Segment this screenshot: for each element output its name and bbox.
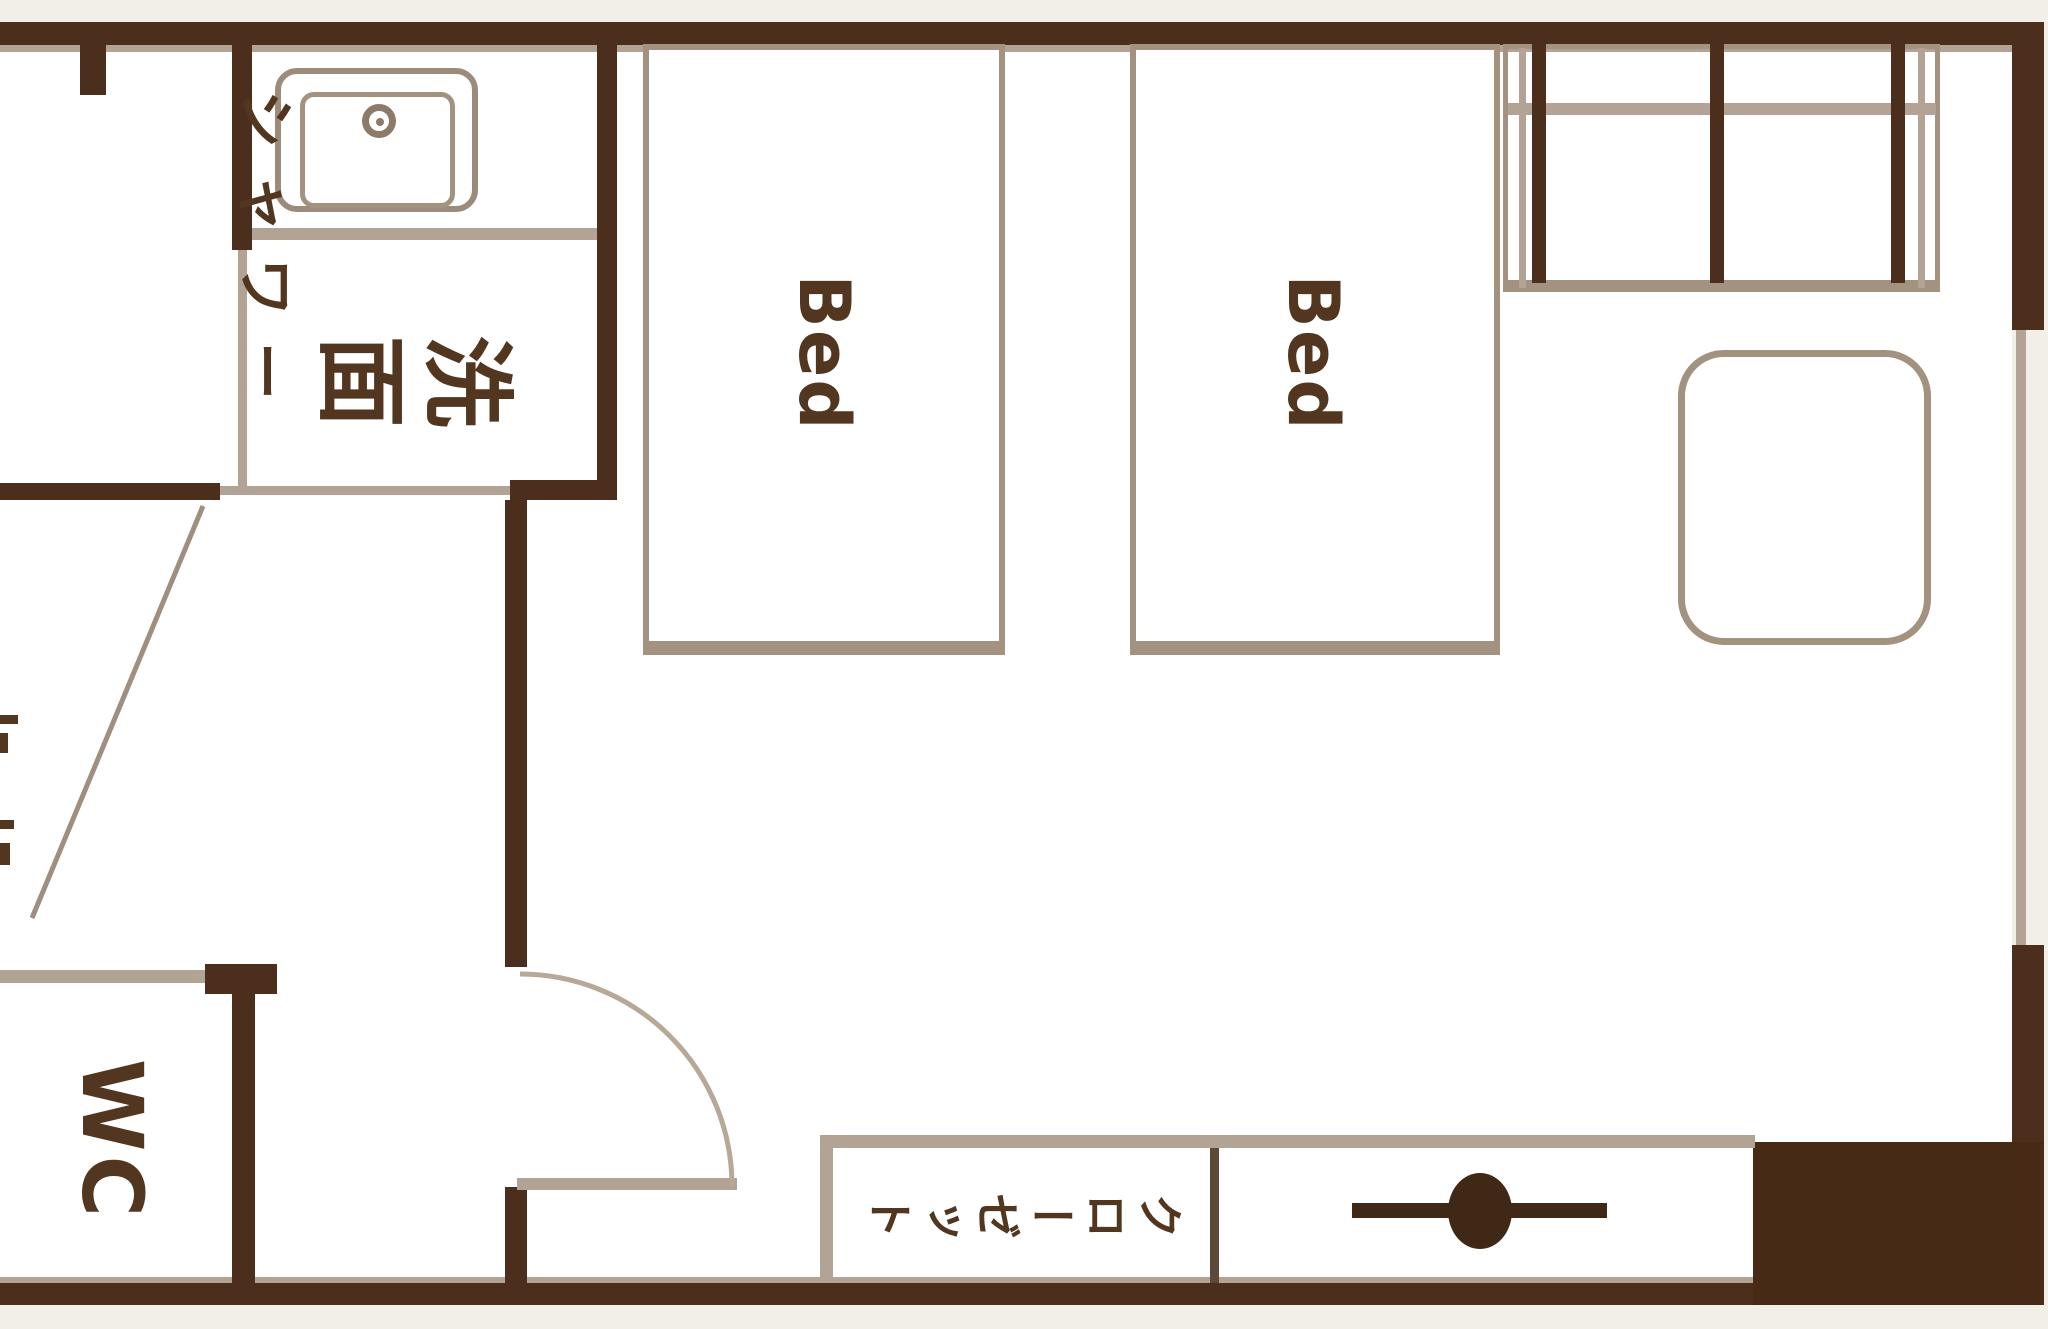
washroom-label: 洗面 [304,327,516,419]
cutoff-text-fragment [0,715,18,724]
floor-plan: シャワー ルーム 洗面 WC Bed Bed クローゼット [0,0,2048,1329]
bed2-label: Bed [1278,275,1348,432]
cutoff-text-fragment [0,843,10,865]
wc-label: WC [70,1059,154,1221]
cutoff-text-fragment [0,733,8,753]
closet-label: クローゼット [860,1190,1184,1236]
cutoff-text-fragment [0,820,14,829]
bed1-label: Bed [789,275,859,432]
